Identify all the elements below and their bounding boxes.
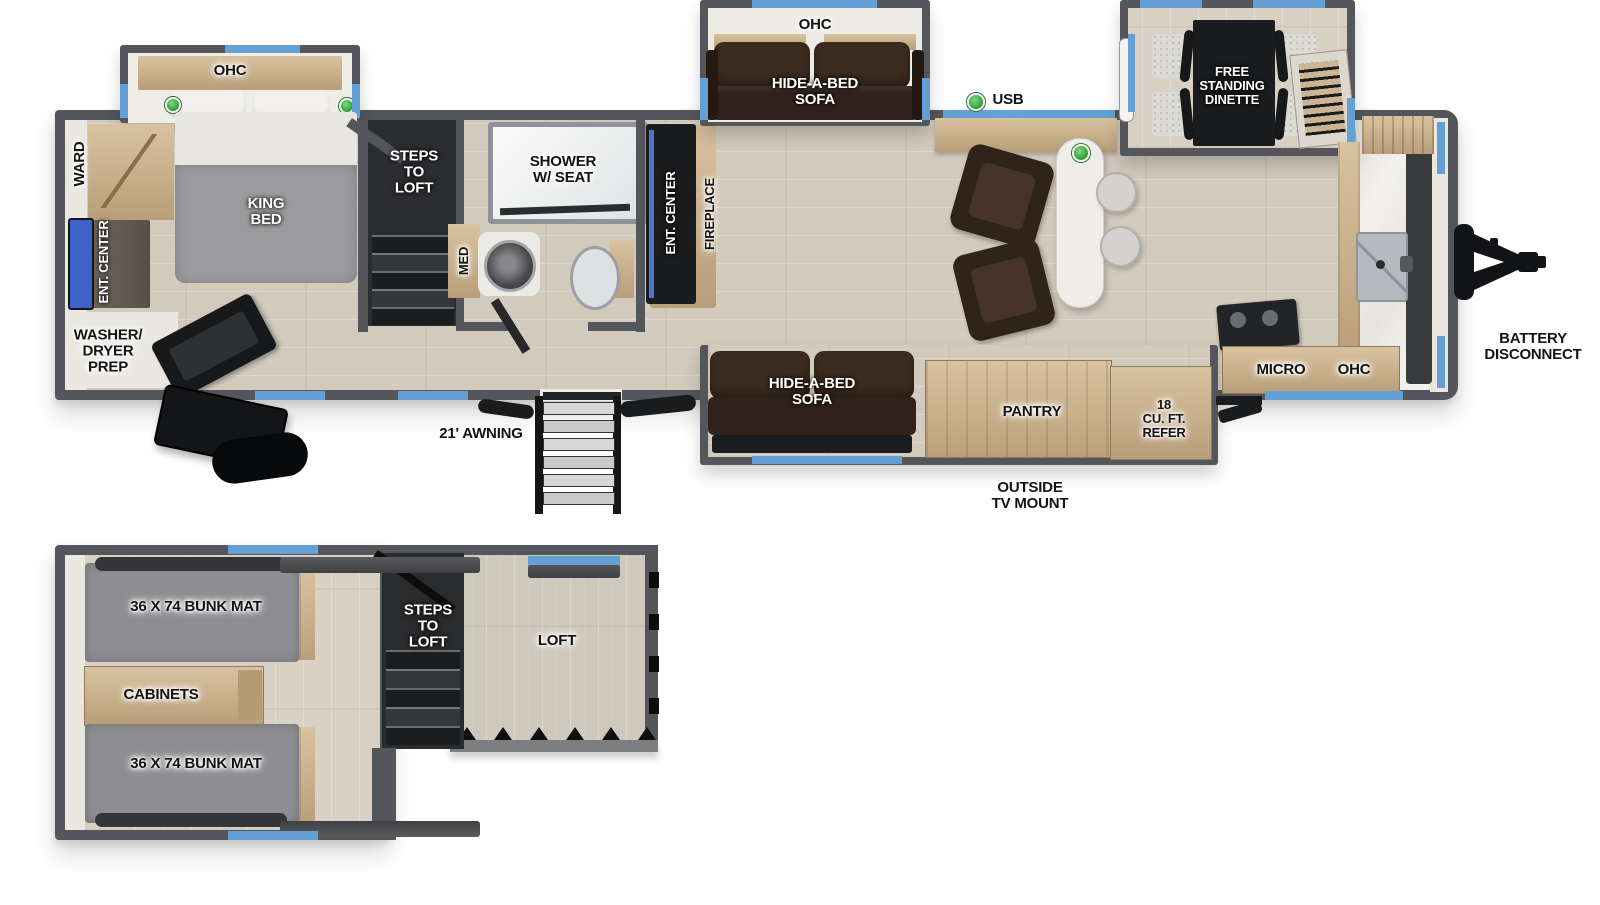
steps-to-loft-upper-label: STEPS TO LOFT xyxy=(404,603,452,652)
bunk-rear-headrail xyxy=(95,813,287,827)
dinette-window-top-1 xyxy=(1140,0,1202,8)
sofa-bottom-label: HIDE-A-BED SOFA xyxy=(769,376,855,408)
bedroom-ohc-label: OHC xyxy=(214,63,247,79)
outside-tv-label: OUTSIDE TV MOUNT xyxy=(992,480,1069,512)
sofa-bottom-base xyxy=(712,435,912,453)
king-bed-sheet xyxy=(175,112,357,172)
dinette-window-left xyxy=(1128,34,1135,112)
bed-light-indicator-left xyxy=(165,97,181,113)
entry-step xyxy=(543,492,615,505)
step-bar-4 xyxy=(372,289,454,307)
entry-step xyxy=(543,402,615,415)
railing-post xyxy=(602,727,620,740)
bottom-slide-window xyxy=(752,456,902,464)
galley-window xyxy=(943,110,1115,118)
bunk-front-label: 36 X 74 BUNK MAT xyxy=(130,599,262,615)
bath-sink xyxy=(484,240,536,292)
bunk-front-headrail xyxy=(95,557,287,571)
awning-arm-left xyxy=(477,398,534,420)
loft-cabinets-label: CABINETS xyxy=(123,687,198,703)
bunk-mat-rear xyxy=(85,724,299,823)
railing-post xyxy=(566,727,584,740)
loft-window xyxy=(528,556,620,565)
bunk-rear-label: 36 X 74 BUNK MAT xyxy=(130,756,262,772)
railing-post xyxy=(530,727,548,740)
kitchen-island xyxy=(1056,138,1104,308)
mid-ent-center-label: ENT. CENTER xyxy=(664,171,678,254)
bunk-rear-footrail xyxy=(299,727,315,821)
refer-label: 18 CU. FT. REFER xyxy=(1142,398,1185,440)
sofa-slide-window-top xyxy=(752,0,877,8)
micro-label: MICRO xyxy=(1257,362,1306,378)
ward-shelf-line xyxy=(96,134,172,208)
loft-step-3 xyxy=(386,688,460,707)
bath-right-wall xyxy=(636,120,645,332)
pantry-label: PANTRY xyxy=(1003,404,1062,420)
kitchen-faucet xyxy=(1400,256,1413,272)
rear-tv-screen xyxy=(68,218,94,310)
railing-post xyxy=(494,727,512,740)
loft-step-5 xyxy=(386,726,460,745)
bunk-front-footrail xyxy=(299,566,315,660)
bottom-window-2 xyxy=(398,391,468,400)
loft-wall-notch-1 xyxy=(649,572,659,588)
bath-bottom-wall-left xyxy=(456,322,508,331)
bed-slide-window-top xyxy=(225,45,300,53)
step-bar-2 xyxy=(372,253,454,271)
kitchen-ohc-label: OHC xyxy=(1338,362,1371,378)
step-bar-5 xyxy=(372,307,454,325)
shower-label: SHOWER W/ SEAT xyxy=(530,154,596,186)
loft-window-shade xyxy=(528,564,620,578)
dinette-window-top-2 xyxy=(1253,0,1325,8)
stool-2 xyxy=(1100,226,1141,267)
hitch-graphic xyxy=(1452,212,1547,312)
dinette-hutch-blinds xyxy=(1298,60,1345,136)
entry-step xyxy=(543,456,615,469)
sofa-slide-window-left xyxy=(700,78,708,120)
entry-step xyxy=(543,474,615,487)
battery-disconnect-label: BATTERY DISCONNECT xyxy=(1484,331,1581,363)
stove xyxy=(1216,299,1300,352)
bottom-window-3 xyxy=(1265,391,1403,400)
bath-bottom-wall-right xyxy=(588,322,645,331)
mid-tv-screen xyxy=(649,130,654,298)
steps-to-loft-main-label: STEPS TO LOFT xyxy=(390,149,438,198)
rear-ent-center-label: ENT. CENTER xyxy=(97,220,111,303)
loft-label: LOFT xyxy=(538,633,576,649)
sofa-ohc-label: OHC xyxy=(799,17,832,33)
front-counter xyxy=(1406,126,1432,384)
sofa-top-label: HIDE-A-BED SOFA xyxy=(772,76,858,108)
entry-step xyxy=(543,438,615,451)
fireplace-label: FIREPLACE xyxy=(703,178,717,250)
sofa-slide-window-right xyxy=(922,78,930,120)
bunkroom-lining xyxy=(65,555,85,830)
loft-step-4 xyxy=(386,707,460,726)
loft-step-2 xyxy=(386,669,460,688)
step-bar-1 xyxy=(372,235,454,253)
toilet-bowl xyxy=(570,246,620,310)
awning-label: 21' AWNING xyxy=(439,426,523,442)
dinette-label: FREE STANDING DINETTE xyxy=(1199,65,1264,107)
front-window-top xyxy=(1437,122,1445,174)
rv-floorplan: OHC KING BED WARD ENT. CENTER WASHER/ DR… xyxy=(0,0,1600,905)
bed-slide-window-left xyxy=(120,84,128,118)
king-bed-label: KING BED xyxy=(248,196,285,228)
med-label: MED xyxy=(457,247,471,275)
loft-wall-notch-3 xyxy=(649,656,659,672)
front-window-bottom xyxy=(1437,336,1445,388)
bunk-window-bottom xyxy=(228,831,318,840)
stool-1 xyxy=(1096,172,1137,213)
entry-steps xyxy=(535,396,621,518)
washer-dryer-label: WASHER/ DRYER PREP xyxy=(74,328,143,377)
kitchen-sink-drain xyxy=(1376,260,1385,269)
loft-wall-notch-4 xyxy=(649,698,659,714)
stove-burner-1 xyxy=(1230,312,1246,328)
loft-railing-bar xyxy=(450,740,658,752)
loft-cabinets-end xyxy=(238,670,262,720)
stove-burner-2 xyxy=(1262,310,1278,326)
bunk-window-shade-top xyxy=(280,557,480,573)
loft-step-1 xyxy=(386,650,460,669)
loft-wall-notch-2 xyxy=(649,614,659,630)
ward-label: WARD xyxy=(72,141,88,186)
front-corner-cabinet xyxy=(1362,116,1434,154)
entry-step xyxy=(543,420,615,433)
railing-post xyxy=(638,727,656,740)
bottom-window-1 xyxy=(255,391,325,400)
bunk-window-top xyxy=(228,545,318,554)
usb-label: USB xyxy=(992,92,1023,108)
entry-steps-rail-left xyxy=(535,396,543,514)
usb-indicator-top xyxy=(967,93,985,111)
usb-indicator-island xyxy=(1072,144,1090,162)
bedroom-divider-wall xyxy=(358,120,368,332)
step-bar-3 xyxy=(372,271,454,289)
micro-ohc-cabinet xyxy=(1222,346,1400,394)
